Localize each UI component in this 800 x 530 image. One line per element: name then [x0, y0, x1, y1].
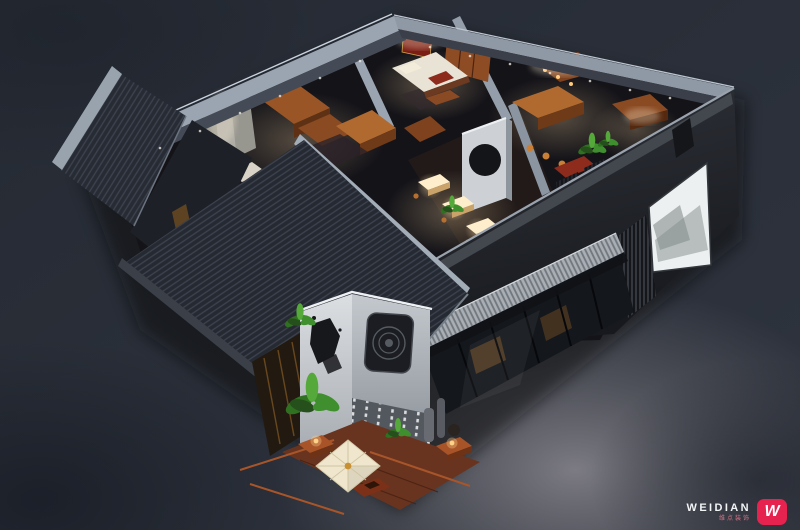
brand-logo-badge: W [757, 499, 787, 525]
tall-vase [437, 398, 445, 438]
jar [448, 424, 460, 436]
watermark: WEIDIAN 维点装饰 W [687, 499, 787, 525]
showroom-3d-render [0, 0, 800, 530]
lattice-medallion [364, 312, 414, 373]
brand-name: WEIDIAN [687, 503, 751, 514]
tall-vase [424, 408, 434, 442]
watermark-text: WEIDIAN 维点装饰 [687, 503, 751, 522]
render-canvas: WEIDIAN 维点装饰 W [0, 0, 800, 530]
brand-subtitle: 维点装饰 [719, 516, 751, 522]
